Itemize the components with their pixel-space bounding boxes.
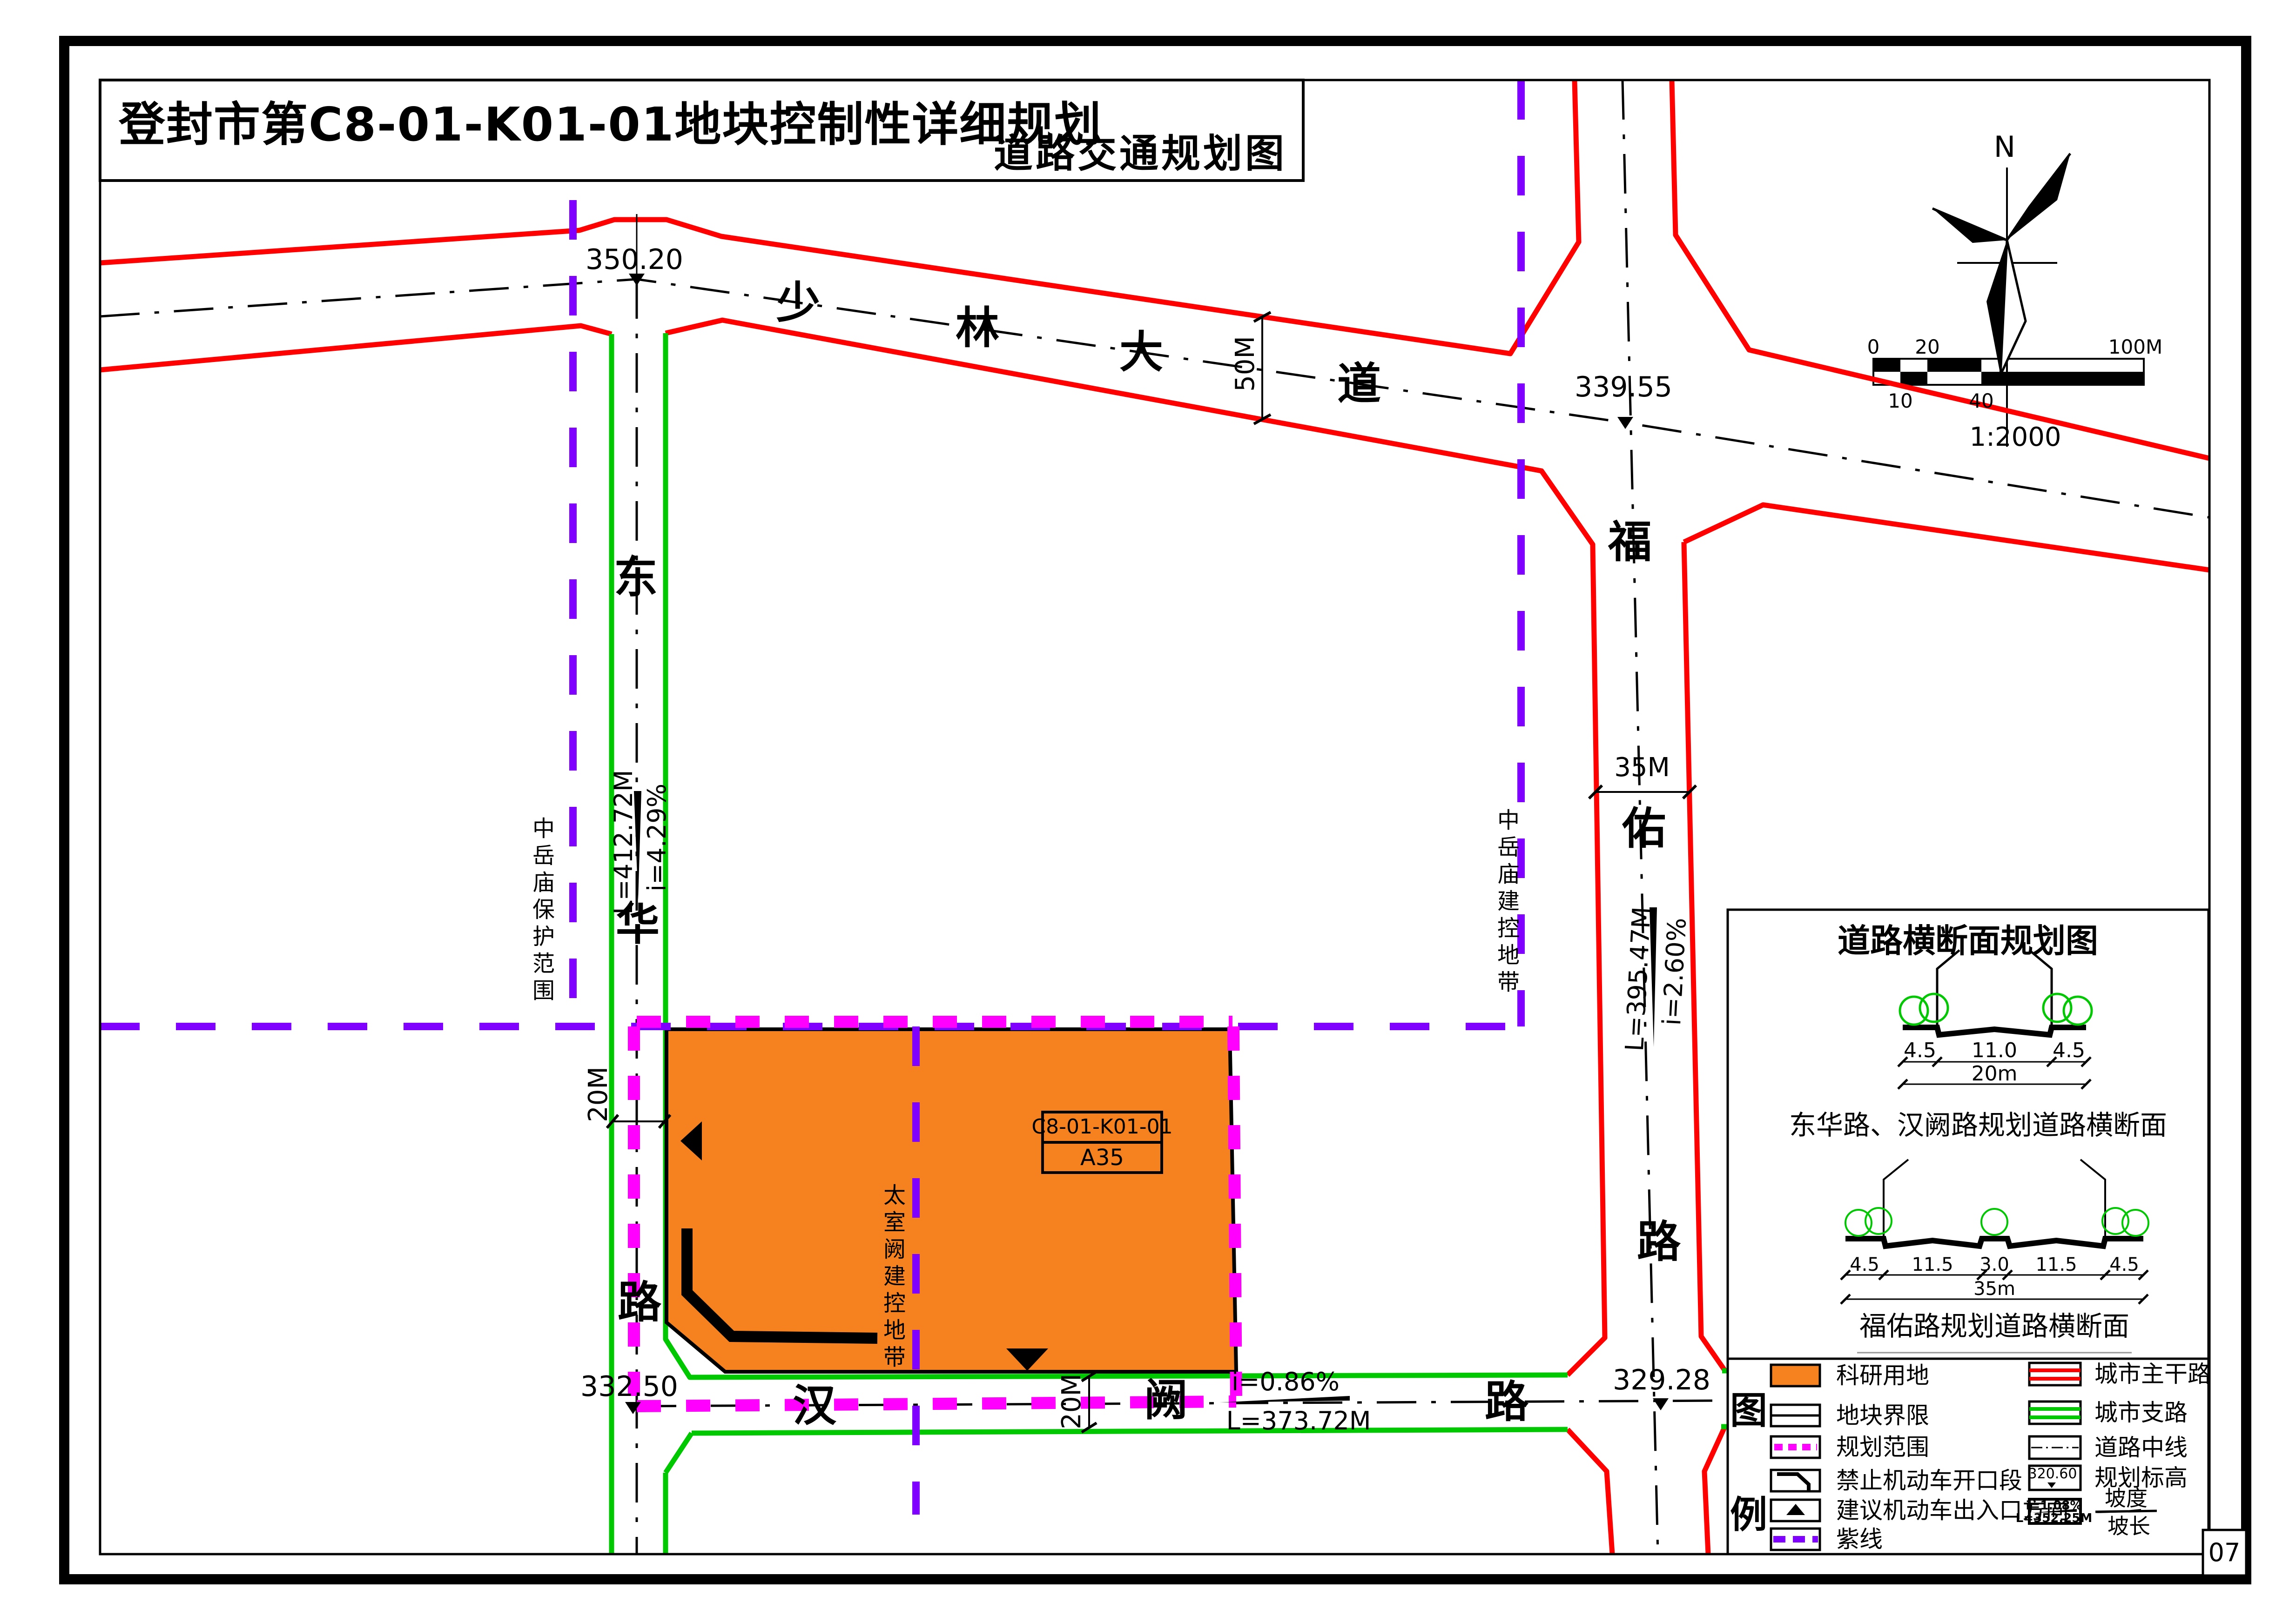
legend-panel [1728, 1359, 2208, 1554]
page-number-box [2203, 1530, 2246, 1576]
title-box [100, 80, 1303, 181]
research-plot [667, 1029, 1236, 1372]
legend-swatch-research [1771, 1365, 1820, 1386]
research-plot-polygon [667, 1029, 1236, 1372]
cross-section-panel [1728, 910, 2208, 1359]
plan-sheet: 登封市第C8-01-K01-01地块控制性详细规划 道路交通规划图 少 林 大 … [0, 0, 2296, 1623]
north-arrow-icon [1932, 154, 2070, 447]
map-drawing [0, 0, 2296, 1623]
scale-bar [1873, 359, 2144, 385]
